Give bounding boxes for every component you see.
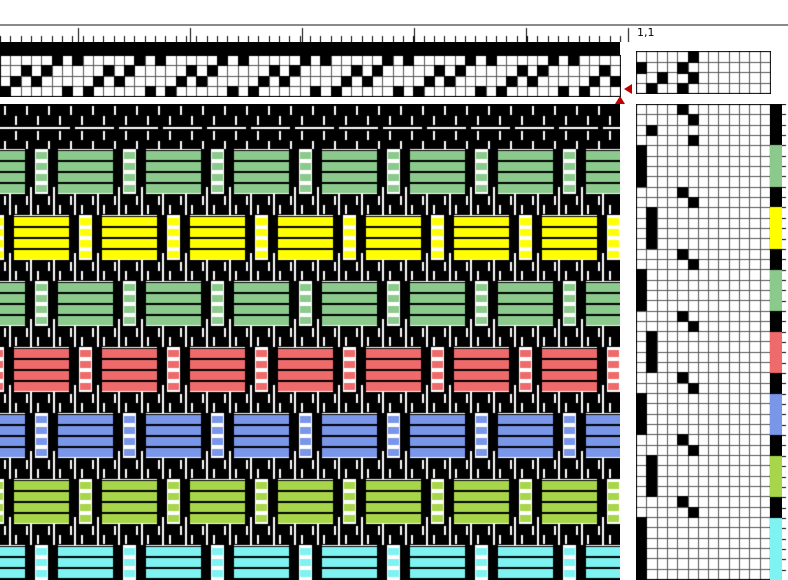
warp-color-bar[interactable] [0, 42, 620, 56]
cursor-marker-up-icon [615, 96, 625, 104]
tieup-grid[interactable] [636, 51, 771, 94]
weft-row-ticks [782, 104, 788, 580]
cursor-marker-left-icon [624, 84, 632, 94]
warp-ruler [0, 26, 630, 42]
cursor-position-label: 1,1 [637, 26, 655, 39]
drawdown-fabric-view [0, 104, 620, 580]
liftplan-grid[interactable] [636, 104, 771, 580]
threading-grid[interactable] [0, 55, 621, 97]
